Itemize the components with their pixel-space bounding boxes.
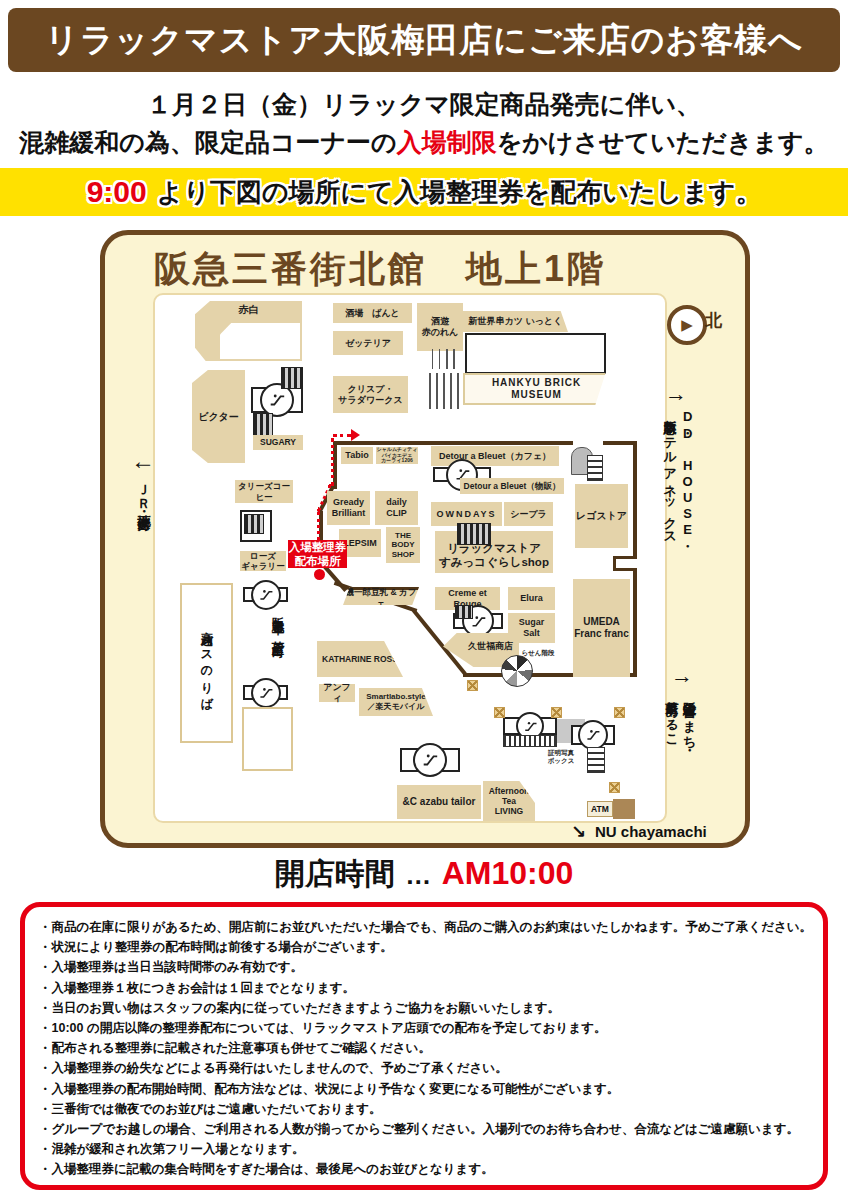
store-amphi: アンフィ [319, 684, 355, 702]
open-area-shape [242, 707, 293, 771]
store-victor: ビクター [192, 370, 245, 463]
store-tullys: タリーズコーヒー [235, 480, 293, 503]
store-lego: レゴストア [575, 484, 628, 548]
atm-box: ATM [587, 801, 613, 817]
note-item: ・グループでお越しの場合、ご利用される人数が揃ってからご整列ください。入場列での… [39, 1119, 809, 1139]
ticket-distribution-badge: 入場整理券 配布場所 [288, 540, 347, 568]
hankyu-gate-label: 阪急電車 茶屋町口 [249, 607, 287, 681]
notes-list: ・商品の在庫に限りがあるため、開店前にお並びいただいた場合でも、商品のご購入のお… [39, 917, 809, 1180]
akashiro-inner-shape [220, 323, 300, 359]
escalator-circle-icon [578, 720, 608, 750]
escalator-icon [400, 748, 460, 772]
note-item: ・入場整理券に記載の集合時間をすぎた場合は、最後尾へのお並びとなります。 [39, 1159, 809, 1179]
notice-entry-restriction: 入場制限 [397, 128, 497, 156]
ddhouse-arrow-icon: → [665, 381, 687, 407]
bus-terminal-area: 高速バスのりば [180, 583, 233, 743]
nu-chayamachi-label: NU chayamachi [595, 823, 707, 840]
note-item: ・10:00 の開店以降の整理券配布については、リラックマストア店頭での配布を予… [39, 1018, 809, 1038]
note-item: ・三番街では徹夜でのお並びはご遠慮いただいております。 [39, 1099, 809, 1119]
escalator-icon [251, 387, 303, 413]
store-tonyu-cafe: 磯一郎豆乳 & カフェ [343, 587, 419, 605]
map-title: 阪急三番街北館 地上1階 [145, 245, 615, 294]
wall-segment [603, 441, 637, 445]
note-item: ・混雑が緩和され次第フリー入場となります。 [39, 1139, 809, 1159]
pillar-icon [609, 782, 620, 793]
spiral-stairs-icon [501, 655, 533, 687]
store-hankyu-brick-museum: HANKYU BRICK MUSEUM [463, 373, 610, 405]
store-azabu-tailor: &C azabu tailor [397, 785, 481, 819]
opening-ellipsis: … [405, 860, 431, 890]
note-item: ・当日のお買い物はスタッフの案内に従っていただきますようご協力をお願いいたします… [39, 998, 809, 1018]
kosho-exit-label: 阪急古書のまち・ 茶屋町あるこ [663, 691, 698, 801]
floor-map: 阪急三番街北館 地上1階 ▶ 北 赤白 酒場 ばんと 酒遊 赤のれん 新世界串カ… [100, 230, 750, 848]
museum-hall-shape [465, 333, 606, 374]
ddhouse-exit-label: D・D HOUSE・ 新阪急ホテルアネックス [661, 409, 696, 579]
wall-segment [335, 441, 573, 445]
stairs-icon [281, 367, 303, 389]
route-dotted-line [331, 438, 334, 486]
store-shinsekai-kushikatsu: 新世界串カツ いっとく [463, 311, 568, 332]
store-sugary: SUGARY [253, 435, 303, 450]
store-zetteria: ゼッテリア [333, 331, 403, 355]
escalator-circle-icon [251, 580, 281, 610]
escalator-icon [243, 685, 288, 700]
page-title: リラックマストア大阪梅田店にご来店のお客様へ [45, 18, 803, 63]
poster: リラックマストア大阪梅田店にご来店のお客様へ １月２日（金）リラックマ限定商品発… [0, 0, 848, 1200]
route-dotted-line [333, 434, 351, 437]
escalator-icon [503, 717, 557, 735]
north-compass-icon: ▶ [667, 305, 707, 345]
stairs-icon [457, 523, 491, 545]
pillar-icon [551, 707, 562, 718]
stairs-comb-icon [587, 747, 605, 773]
stairs-hatch-icon [432, 349, 458, 369]
ticket-banner: 9:00 より下図の場所にて入場整理券を配布いたします。 [0, 168, 848, 216]
store-rose-gallery: ローズ ギャラリー [240, 551, 286, 571]
opening-time: AM10:00 [442, 855, 574, 891]
store-detour-shop: Detour a Bleuet（物販） [460, 478, 564, 494]
store-daily-clip: daily CLIP [375, 491, 418, 525]
store-gready-brilliant: Gready Brilliant [327, 491, 370, 525]
route-arrow-icon [351, 429, 360, 441]
store-cpla: シープラ [504, 502, 553, 526]
store-shuyu-akanoren: 酒遊 赤のれん [417, 303, 463, 351]
store-body-shop: THE BODY SHOP [386, 527, 420, 563]
note-item: ・状況により整理券の配布時間は前後する場合がございます。 [39, 937, 809, 957]
wall-segment [613, 556, 637, 559]
store-tabio: Tabio [341, 447, 373, 464]
notice-line1: １月２日（金）リラックマ限定商品発売に伴い、 [0, 88, 848, 121]
note-item: ・入場整理券は当日当該時間帯のみ有効です。 [39, 957, 809, 977]
stairs-icon [455, 605, 473, 619]
pillar-icon [467, 680, 478, 691]
notice-line2-pre: 混雑緩和の為、限定品コーナーの [19, 128, 396, 156]
store-charm: シャルムチィティ バイカエデェ カーライ1206 [376, 447, 418, 464]
atm-block-shape [613, 799, 635, 819]
header-banner: リラックマストア大阪梅田店にご来店のお客様へ [8, 8, 840, 72]
stairs-icon [253, 413, 273, 437]
stairs-icon [244, 514, 264, 534]
wall-segment [633, 569, 637, 677]
notice-line2-post: をかけさせていただきます。 [497, 128, 829, 156]
store-elura: Elura [508, 587, 555, 610]
note-item: ・入場整理券の配布開始時間、配布方法などは、状況により予告なく変更になる可能性が… [39, 1079, 809, 1099]
store-sakaba-panto: 酒場 ばんと [333, 303, 412, 323]
pillar-icon [614, 707, 625, 718]
escalator-circle-icon [413, 743, 447, 777]
spiral-stairs-label: らせん階段 [513, 649, 563, 657]
store-smartlabo: Smartlabo.style ／楽天モバイル [359, 688, 433, 716]
jr-exit-label: ＪＲ・地下鉄方面 [135, 475, 153, 590]
ticket-text: より下図の場所にて入場整理券を配布いたします。 [157, 175, 762, 210]
nu-arrow-icon: ↘ [571, 821, 586, 843]
north-label: 北 [705, 311, 722, 331]
escalator-icon [571, 725, 615, 745]
kosho-arrow-icon: → [671, 663, 693, 689]
escalator-icon [243, 587, 288, 602]
note-item: ・商品の在庫に限りがあるため、開店前にお並びいただいた場合でも、商品のご購入のお… [39, 917, 809, 937]
wall-segment [633, 441, 637, 558]
notice-line2: 混雑緩和の為、限定品コーナーの入場制限をかけさせていただきます。 [0, 126, 848, 159]
store-rilakkuma: リラックマストア すみっコぐらしshop [435, 531, 553, 573]
note-item: ・入場整理券１枚につきお会計は１回までとなります。 [39, 978, 809, 998]
store-francfranc: UMEDA Franc franc [573, 579, 630, 677]
note-item: ・入場整理券の紛失などによる再発行はいたしませんので、予めご了承ください。 [39, 1058, 809, 1078]
notes-box: ・商品の在庫に限りがあるため、開店前にお並びいただいた場合でも、商品のご購入のお… [20, 902, 828, 1190]
jr-arrow-icon: ← [131, 447, 155, 475]
bus-terminal-label: 高速バスのりば [198, 622, 215, 704]
photo-booth-label: 証明写真 ボックス [533, 749, 589, 765]
escalator-circle-icon [251, 678, 281, 708]
pillar-icon [494, 707, 505, 718]
ticket-time: 9:00 [87, 175, 147, 209]
note-item: ・配布される整理券に記載された注意事項も併せてご確認ください。 [39, 1038, 809, 1058]
stairs-comb-icon [503, 735, 557, 747]
store-crisp-saladworks: クリスプ・ サラダワークス [333, 376, 408, 413]
opening-label: 開店時間 [275, 857, 395, 890]
opening-time-line: 開店時間 … AM10:00 [0, 854, 848, 895]
ticket-spot-dot [314, 569, 325, 580]
stairs-hatch-icon [429, 373, 459, 409]
spiral-staircase-steps-icon [587, 455, 603, 481]
